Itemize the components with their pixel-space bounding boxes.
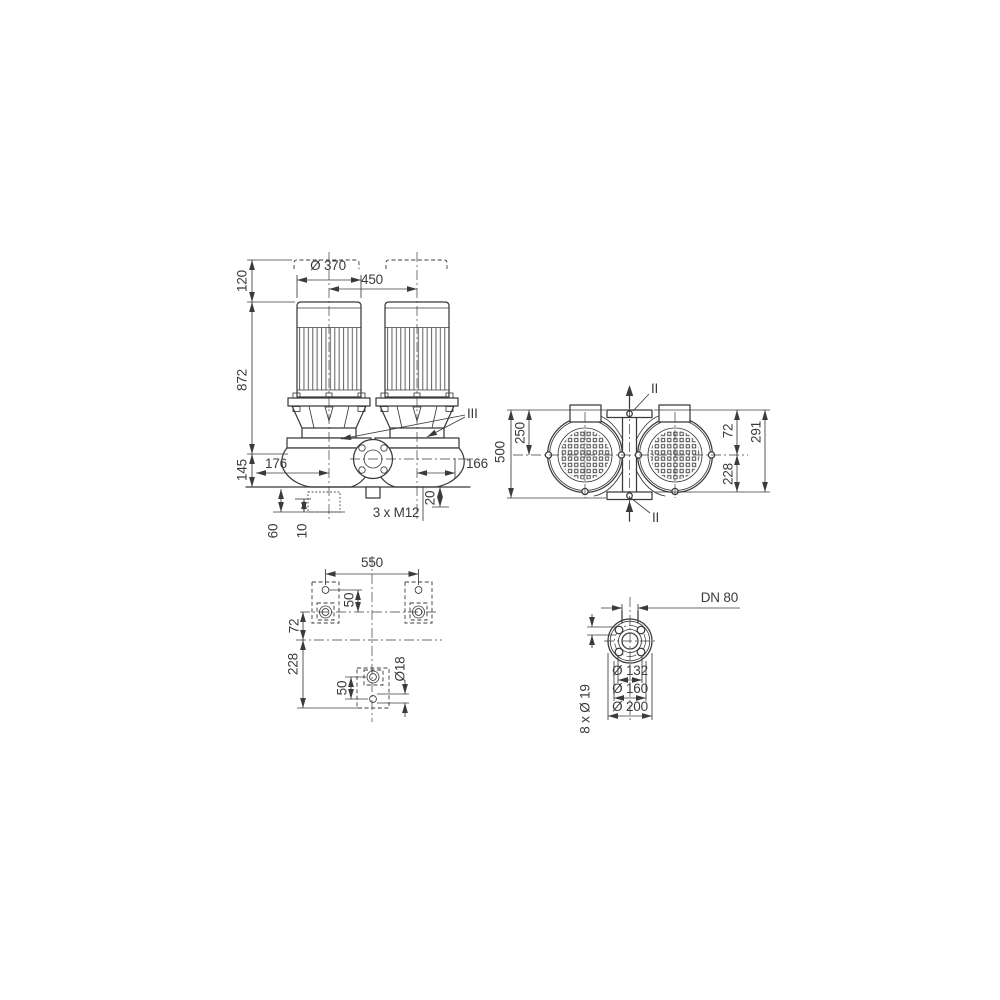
dim-total-height: 872 (235, 369, 250, 391)
dim-left-offset: 176 (265, 456, 287, 471)
dim-pad-hole-offset-bottom: 50 (335, 681, 350, 696)
dim-bolt-spacing: 550 (361, 555, 383, 570)
dim-foot-offset: 60 (266, 524, 281, 539)
dim-center-offset: 72 (287, 619, 302, 634)
dim-bolt-circle-diameter: Ø 160 (612, 681, 648, 696)
dim-base-height: 145 (235, 459, 250, 481)
dim-center-to-edge: 72 (721, 424, 736, 439)
dim-hole-depth: 20 (423, 491, 438, 506)
section-marker-ii-bottom: II (652, 510, 659, 525)
terminal-box-right (659, 405, 690, 422)
dim-overall-depth: 291 (749, 421, 764, 443)
dim-center-to-port: 250 (513, 422, 528, 444)
dim-center-to-back: 228 (721, 463, 736, 485)
dim-motor-diameter: Ø 370 (310, 258, 346, 273)
dim-port-to-port: 500 (493, 441, 508, 463)
dim-right-offset: 166 (466, 456, 488, 471)
dim-outer-diameter: Ø 200 (612, 699, 648, 714)
dim-nominal-diameter: DN 80 (701, 590, 738, 605)
drain-stub (366, 487, 380, 498)
dim-fan-clearance: 120 (235, 270, 250, 292)
dim-raised-face-diameter: Ø 132 (612, 663, 648, 678)
dim-motor-spacing: 450 (361, 272, 383, 287)
terminal-box-left (570, 405, 601, 422)
section-marker-ii-top: II (651, 381, 658, 396)
dim-bolt-holes: 8 x Ø 19 (578, 684, 593, 733)
canvas (0, 0, 1000, 1000)
dim-rear-offset: 228 (286, 653, 301, 675)
section-marker-iii: III (467, 406, 478, 421)
dim-pad-hole-offset-top: 50 (342, 593, 357, 608)
pump-dimensional-drawing: 120 872 145 Ø 370 450 176 166 III 60 10 (0, 0, 1000, 1000)
dim-anchor-hole-diameter: Ø18 (393, 657, 408, 682)
dim-tapped-holes: 3 x M12 (373, 505, 420, 520)
dim-foot-step: 10 (295, 524, 310, 539)
